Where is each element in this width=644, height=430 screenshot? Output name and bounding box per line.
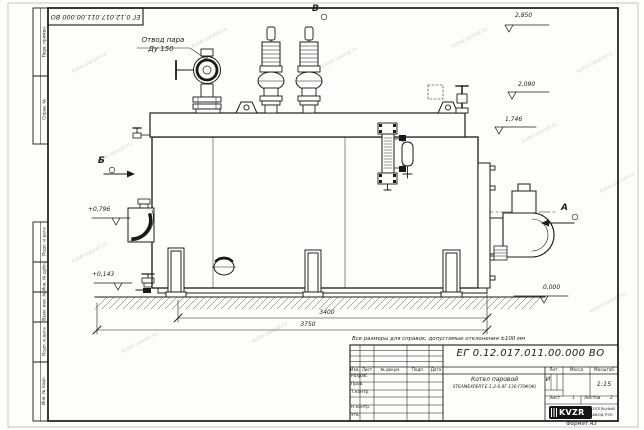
stamp-inv-dubl: Инв. № дубл.	[42, 262, 47, 292]
drain-valve	[136, 274, 154, 293]
view-marker-b: Б	[98, 157, 105, 166]
elevation-0000: 0,000	[543, 285, 560, 291]
col-list: Лист	[360, 368, 374, 372]
dim-3750: 3750	[288, 322, 328, 328]
mass-label: Масса	[563, 368, 590, 372]
row-prov: Пров.	[351, 383, 364, 388]
row-utv: Утв.	[351, 414, 360, 419]
ground	[95, 297, 545, 309]
stamp-podp-data-1: Подп. и дата	[42, 222, 47, 262]
coil-icon	[551, 408, 557, 417]
burner-motor	[512, 191, 536, 213]
front-equipment	[128, 128, 154, 293]
lit-value: И	[545, 377, 551, 383]
steam-outlet-label: Отвод пара	[134, 37, 192, 44]
lit-label: Лит.	[545, 368, 563, 372]
top-casing-plate	[150, 113, 465, 137]
stamp-inv-podl: Инв. № подл.	[41, 361, 46, 420]
row-tkontr: Т.контр.	[351, 391, 370, 396]
elevation-0796: +0,796	[88, 207, 110, 213]
stamp-podp-data-2: Подп. и дата	[42, 322, 47, 362]
format-label: Формат А3	[545, 422, 618, 428]
stamp-vzam-inv: Взам. инв. №	[42, 292, 47, 322]
elevation-1746: 1,746	[505, 117, 522, 123]
steam-outlet-dn-label: Ду 150	[140, 46, 182, 53]
row-nkontr: Н.контр.	[351, 406, 370, 411]
view-marker-v: В	[312, 5, 319, 14]
sheet-value: 1	[572, 397, 575, 402]
company-line2: ЗАВОД РЭП	[590, 413, 613, 417]
drawing-sheet: kotel-zavod.ru kotel-zavod.ru kotel-zavo…	[0, 0, 644, 430]
product-model: STEAMEXPERT-Е-1,2-0,9Г-130-ГЛЖ(Ж)	[444, 386, 545, 391]
elevation-0143: +0,143	[92, 272, 114, 278]
product-name: Котел паровой	[444, 377, 545, 383]
view-marker-a: А	[561, 204, 568, 213]
elevation-2850: 2,850	[515, 13, 532, 19]
reference-note: Все размеры для справок, допустимые откл…	[352, 337, 525, 343]
steam-outlet-valve	[176, 49, 221, 113]
sight-glass	[402, 142, 413, 166]
sheets-label: Листов	[584, 397, 600, 402]
scale-value: 1:15	[590, 381, 618, 388]
row-razrab: Разраб.	[351, 375, 368, 380]
stamp-perv-primen: Перв. примен.	[42, 8, 47, 76]
sheet-label: Лист	[549, 397, 560, 402]
col-data: Дата	[429, 368, 443, 372]
col-dokum: № докум.	[374, 368, 407, 372]
kvzr-logo: KVZR	[549, 406, 592, 419]
dim-3400: 3400	[307, 310, 347, 316]
logo-text: KVZR	[559, 408, 585, 417]
stamp-sprav-no: Справ. №	[42, 76, 47, 144]
drawing-linework	[0, 0, 644, 430]
title-doc-number: ЕГ 0.12.017.011.00.000 ВО	[445, 349, 616, 360]
col-podp: Подп.	[407, 368, 429, 372]
sheets-value: 2	[610, 397, 613, 402]
company-line1: КОТЕЛЬНЫЙ	[590, 407, 615, 411]
elevation-2090: 2,090	[518, 82, 535, 88]
safety-valve	[258, 27, 284, 113]
top-margin-doc-number: ЕГ 0.12.017.011.00.000 ВО	[48, 8, 143, 25]
scale-label: Масштаб	[590, 368, 618, 372]
